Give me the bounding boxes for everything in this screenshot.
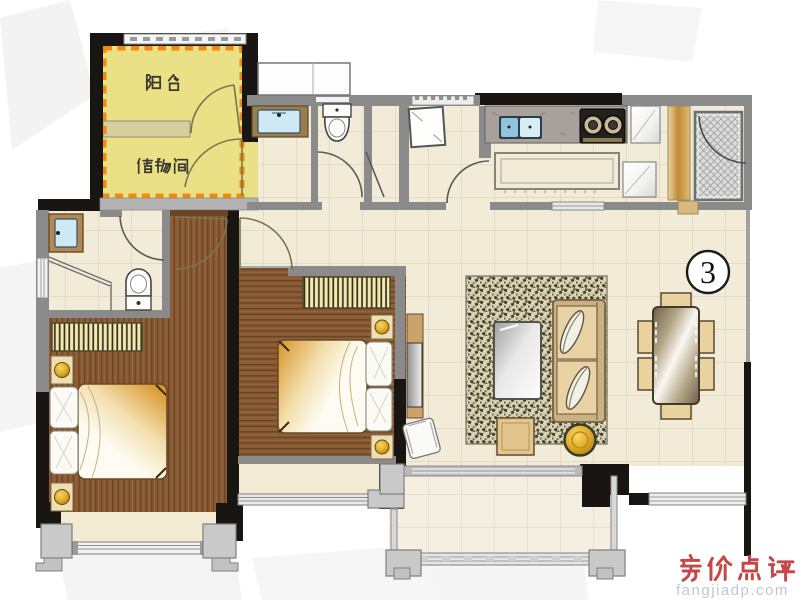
svg-text:3: 3 (700, 254, 716, 290)
svg-text:fangjiadp.com: fangjiadp.com (676, 582, 789, 599)
